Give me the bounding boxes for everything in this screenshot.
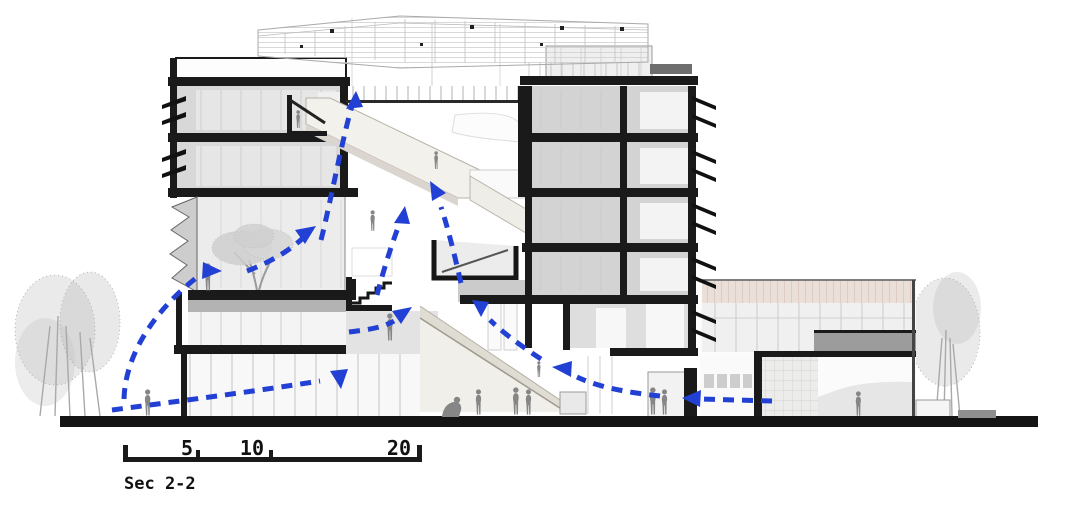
tree-right <box>910 272 981 416</box>
person-silhouette <box>371 210 375 231</box>
person-silhouette <box>145 389 150 415</box>
section-drawing-canvas: 5 10 20 Sec 2-2 <box>0 0 1080 505</box>
scale-bar: 5 10 20 Sec 2-2 <box>123 436 422 494</box>
section-drawing: 5 10 20 Sec 2-2 <box>0 0 1080 505</box>
roof-hedge <box>650 64 692 74</box>
main-building <box>162 16 716 418</box>
scale-label-20: 20 <box>387 436 411 460</box>
ground-line <box>60 416 1038 427</box>
hall-desk <box>560 392 586 414</box>
section-label: Sec 2-2 <box>124 474 196 494</box>
scale-label-10: 10 <box>240 436 264 460</box>
annex-gray-band <box>814 332 916 352</box>
ground-platform <box>958 410 996 418</box>
roof-canopy <box>258 16 648 68</box>
person-silhouette <box>537 361 540 377</box>
right-block-floors <box>530 86 690 348</box>
airflow-arrow-annex-to-hall <box>552 361 660 396</box>
ground-hall <box>560 356 697 418</box>
scale-label-5: 5 <box>181 436 193 460</box>
annex-low-wall <box>916 400 950 417</box>
tree-left-cluster <box>15 272 120 416</box>
stair-switchback <box>434 240 516 278</box>
atrium-roof-railing <box>348 86 524 100</box>
annex-building <box>700 280 950 420</box>
